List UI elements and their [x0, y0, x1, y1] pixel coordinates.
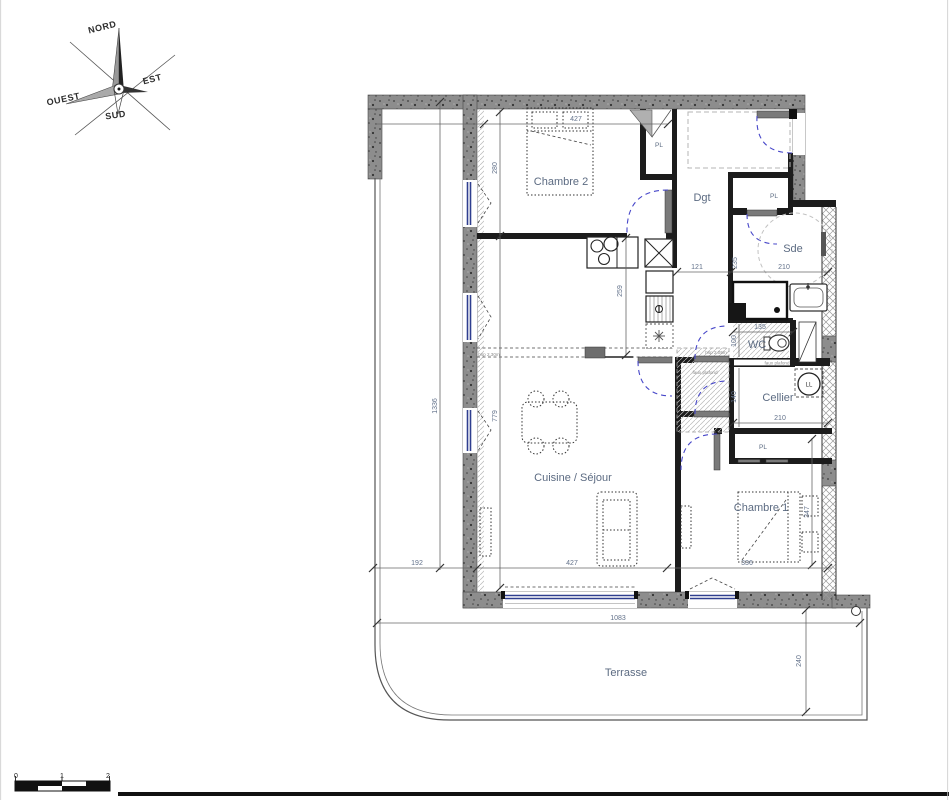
dim-cellier-width: 210 — [774, 415, 786, 422]
label-terrasse: Terrasse — [605, 667, 647, 679]
dim-chambre2-width: 427 — [570, 116, 582, 123]
label-chambre2: Chambre 2 — [534, 176, 588, 188]
toilet-icon — [764, 335, 789, 351]
dim-sejour-width: 427 — [566, 560, 578, 567]
note-hsp-sejour: hsp 2.30m — [478, 352, 500, 357]
windows — [463, 113, 805, 608]
floor-plan-drawing: NORD EST OUEST SUD — [0, 0, 949, 800]
dim-chambre2-height: 280 — [492, 162, 499, 174]
shower-drain — [774, 307, 780, 313]
sofa — [597, 492, 637, 566]
dim-dgt-width: 121 — [691, 264, 703, 271]
compass-needle-north-light — [112, 28, 119, 92]
bathroom-fixtures: LL — [729, 213, 832, 397]
dim-cellier-height: 140 — [731, 391, 738, 403]
dim-wc-height: 100 — [731, 335, 738, 347]
radiator-chambre1 — [681, 506, 691, 548]
note-faux-plafond-hall: faux plafond — [692, 370, 717, 375]
dim-terrasse-depth: 240 — [796, 655, 803, 667]
window-chambre1 — [685, 578, 739, 608]
label-sde: Sde — [783, 243, 803, 255]
floor-plan-sheet: NORD EST OUEST SUD — [0, 0, 949, 800]
dim-left-total: 1336 — [432, 398, 439, 414]
door-sejour — [638, 357, 672, 396]
label-cuisine-sejour: Cuisine / Séjour — [534, 472, 612, 484]
entry-ceiling-dashed — [688, 112, 790, 168]
washing-machine-icon: LL — [795, 369, 823, 397]
dim-sejour-height: 779 — [492, 410, 499, 422]
cooktop-counter — [587, 237, 638, 268]
dim-sde-width: 210 — [778, 264, 790, 271]
door-chambre1 — [681, 434, 720, 470]
door-sde — [747, 210, 777, 244]
window-left-1 — [463, 180, 491, 227]
washing-machine-label: LL — [806, 383, 813, 389]
label-pl-entry: PL — [770, 193, 778, 200]
door-pl-chambre2 — [630, 110, 671, 137]
label-chambre1: Chambre 1 — [734, 502, 788, 514]
dim-bottom-left: 192 — [411, 560, 423, 567]
door-wc — [694, 326, 729, 362]
compass-rose: NORD EST OUEST SUD — [46, 19, 175, 135]
compass-label-south: SUD — [105, 109, 127, 122]
label-dgt: Dgt — [693, 192, 710, 204]
label-wc: WC — [748, 339, 766, 351]
compass-needle-north-dark — [119, 28, 124, 92]
kitchen-cabinet — [646, 271, 673, 293]
window-bay-sejour — [501, 587, 638, 608]
dim-chambre1-width: 336 — [741, 560, 753, 567]
dim-sde-height: 235 — [732, 257, 739, 269]
scale-0: 0 — [14, 773, 18, 780]
washbasin-icon — [790, 283, 827, 311]
technical-shaft — [799, 322, 816, 362]
entrance-door — [757, 109, 797, 153]
note-faux-plafond-wc: faux plafond — [764, 361, 789, 366]
label-cellier: Cellier — [762, 392, 794, 404]
window-left-3 — [463, 408, 491, 453]
dim-terrasse-width: 1083 — [610, 615, 626, 622]
insulation-wall-right — [822, 207, 836, 600]
dim-chambre1-height: 347 — [804, 506, 811, 518]
dim-wc-width: 135 — [754, 324, 766, 331]
compass-label-north: NORD — [87, 19, 117, 36]
entrance-opening — [793, 113, 805, 155]
window-left-2 — [463, 293, 491, 342]
label-pl-chambre2: PL — [655, 142, 663, 149]
step-wall — [793, 200, 836, 207]
dim-kitchen-height: 259 — [617, 285, 624, 297]
kitchen-fixtures — [585, 237, 673, 358]
door-chambre2 — [627, 190, 672, 233]
dining-table — [522, 391, 577, 454]
scale-bar: 0 1 2 — [14, 773, 110, 791]
compass-label-west: OUEST — [46, 91, 81, 108]
compass-label-east: EST — [142, 72, 163, 86]
label-pl-chambre1: PL — [759, 444, 767, 451]
duct-shaft — [729, 303, 746, 320]
kitchen-island — [585, 347, 605, 358]
note-hsp-wc: hsp 2.05m — [705, 350, 727, 355]
terrace-column — [852, 607, 861, 616]
radiator-sde — [821, 232, 826, 256]
